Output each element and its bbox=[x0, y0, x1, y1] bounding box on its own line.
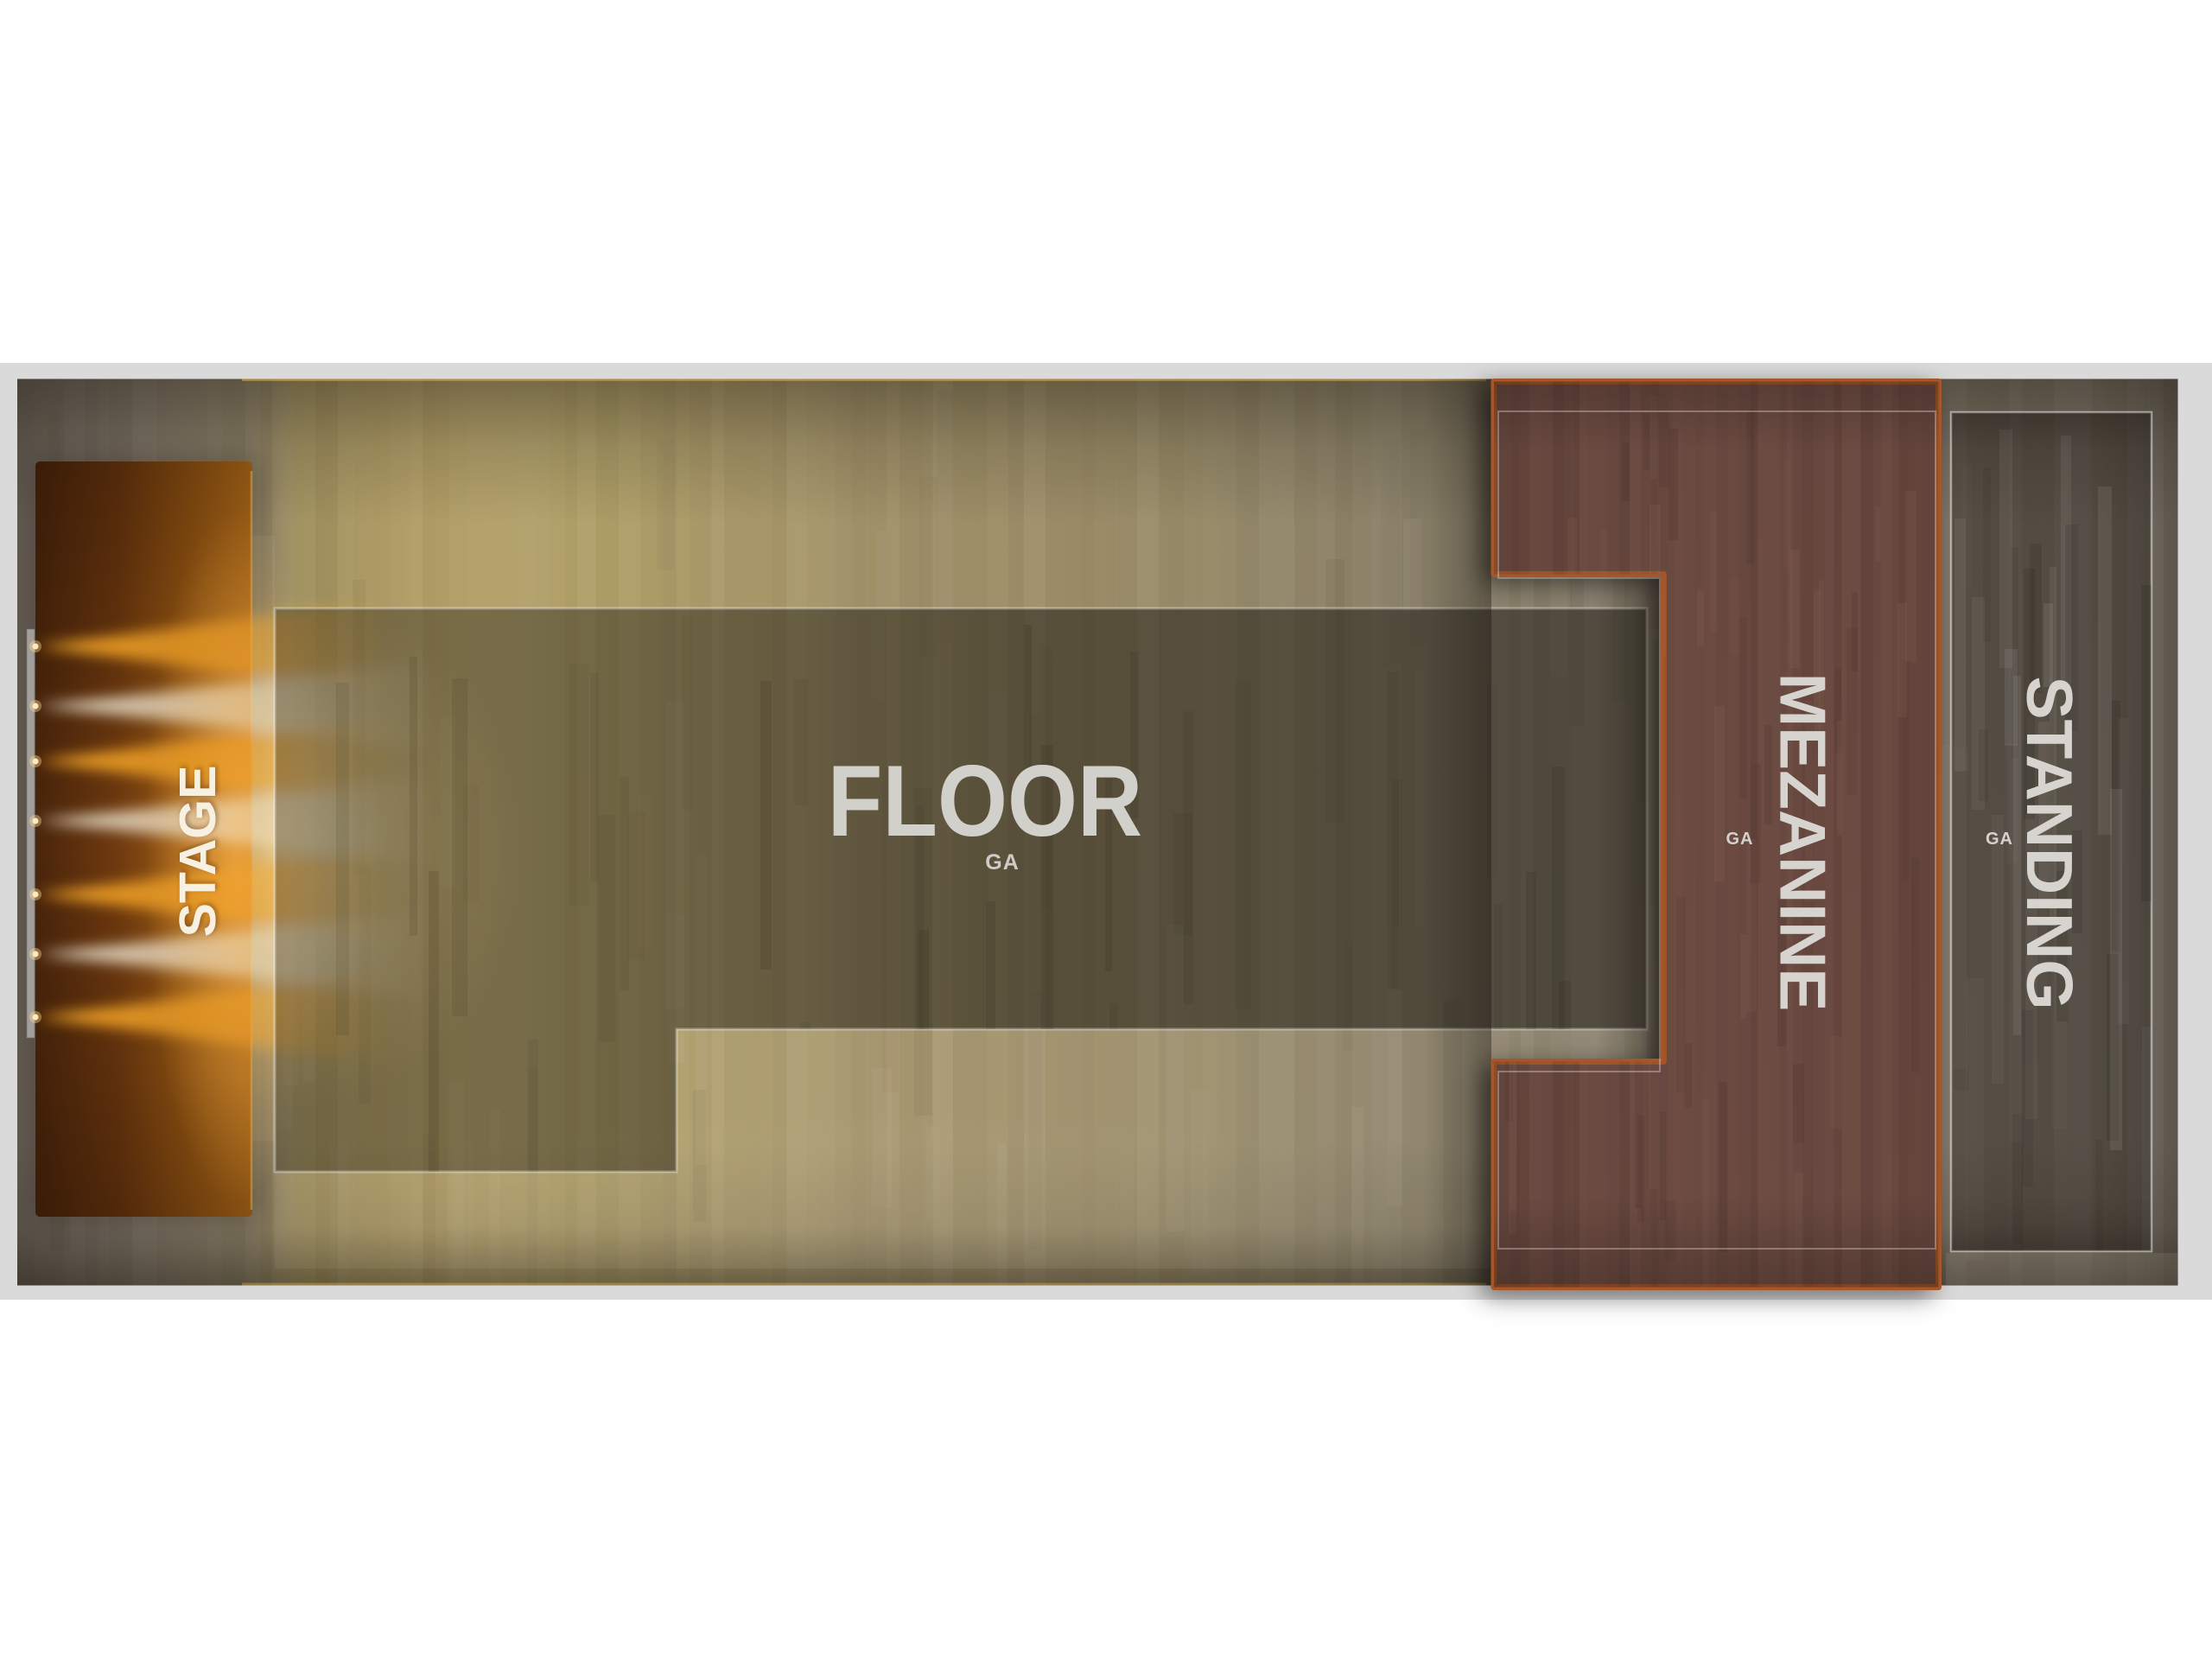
svg-text:FLOOR: FLOOR bbox=[828, 745, 1142, 857]
svg-text:GA: GA bbox=[1726, 830, 1754, 849]
svg-text:MEZANINE: MEZANINE bbox=[1767, 673, 1840, 1012]
svg-text:GA: GA bbox=[985, 850, 1020, 875]
svg-text:STAGE: STAGE bbox=[169, 766, 226, 938]
svg-text:STANDING: STANDING bbox=[2013, 676, 2086, 1009]
svg-text:GA: GA bbox=[1986, 830, 2013, 849]
